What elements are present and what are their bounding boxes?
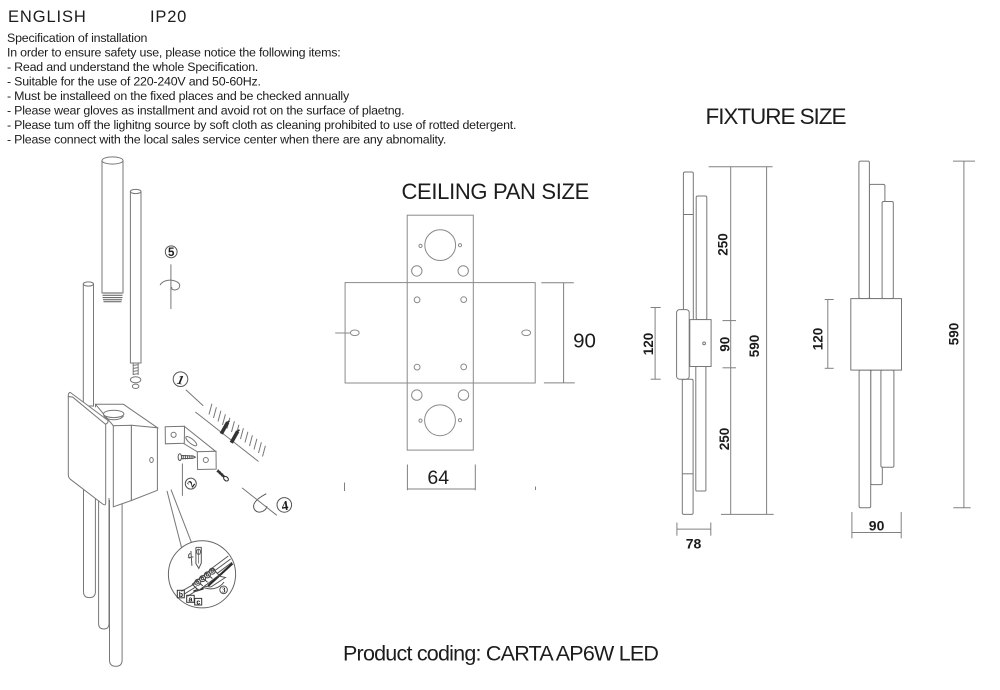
svg-text:64: 64 xyxy=(427,467,449,489)
svg-text:ENGLISH: ENGLISH xyxy=(8,8,87,26)
svg-text:In order to ensure safety use,: In order to ensure safety use, please no… xyxy=(7,46,340,60)
svg-text:Specification of installation: Specification of installation xyxy=(7,31,148,45)
svg-text:250: 250 xyxy=(716,233,731,256)
svg-text:- Read and understand the whol: - Read and understand the whole Specific… xyxy=(7,60,258,74)
svg-text:590: 590 xyxy=(947,323,962,346)
svg-text:250: 250 xyxy=(717,428,732,451)
svg-text:CEILING PAN SIZE: CEILING PAN SIZE xyxy=(402,179,589,204)
svg-text:FIXTURE SIZE: FIXTURE SIZE xyxy=(706,104,847,129)
svg-text:IP20: IP20 xyxy=(150,8,187,26)
svg-text:- Please tum off the lighitng: - Please tum off the lighitng source by … xyxy=(7,118,516,132)
svg-text:Product coding: CARTA AP6W LED: Product coding: CARTA AP6W LED xyxy=(343,641,658,665)
svg-text:a: a xyxy=(189,596,193,603)
svg-text:90: 90 xyxy=(573,329,596,352)
svg-text:5: 5 xyxy=(168,247,175,259)
svg-text:c: c xyxy=(196,599,200,606)
svg-text:- Please connect with the loca: - Please connect with the local sales se… xyxy=(7,132,446,146)
svg-text:- Must be installeed on the fi: - Must be installeed on the fixed places… xyxy=(7,89,350,103)
svg-text:90: 90 xyxy=(718,337,733,352)
svg-text:3: 3 xyxy=(222,586,226,594)
svg-text:90: 90 xyxy=(869,518,885,534)
svg-text:120: 120 xyxy=(641,333,656,356)
svg-text:590: 590 xyxy=(747,335,762,358)
svg-text:- Please wear gloves as instal: - Please wear gloves as installment and … xyxy=(7,103,404,117)
svg-text:4: 4 xyxy=(280,498,289,514)
svg-text:120: 120 xyxy=(811,328,826,351)
svg-text:b: b xyxy=(179,592,183,599)
svg-text:- Suitable for the use of 220-: - Suitable for the use of 220-240V and 5… xyxy=(7,75,261,89)
svg-text:78: 78 xyxy=(686,536,702,552)
